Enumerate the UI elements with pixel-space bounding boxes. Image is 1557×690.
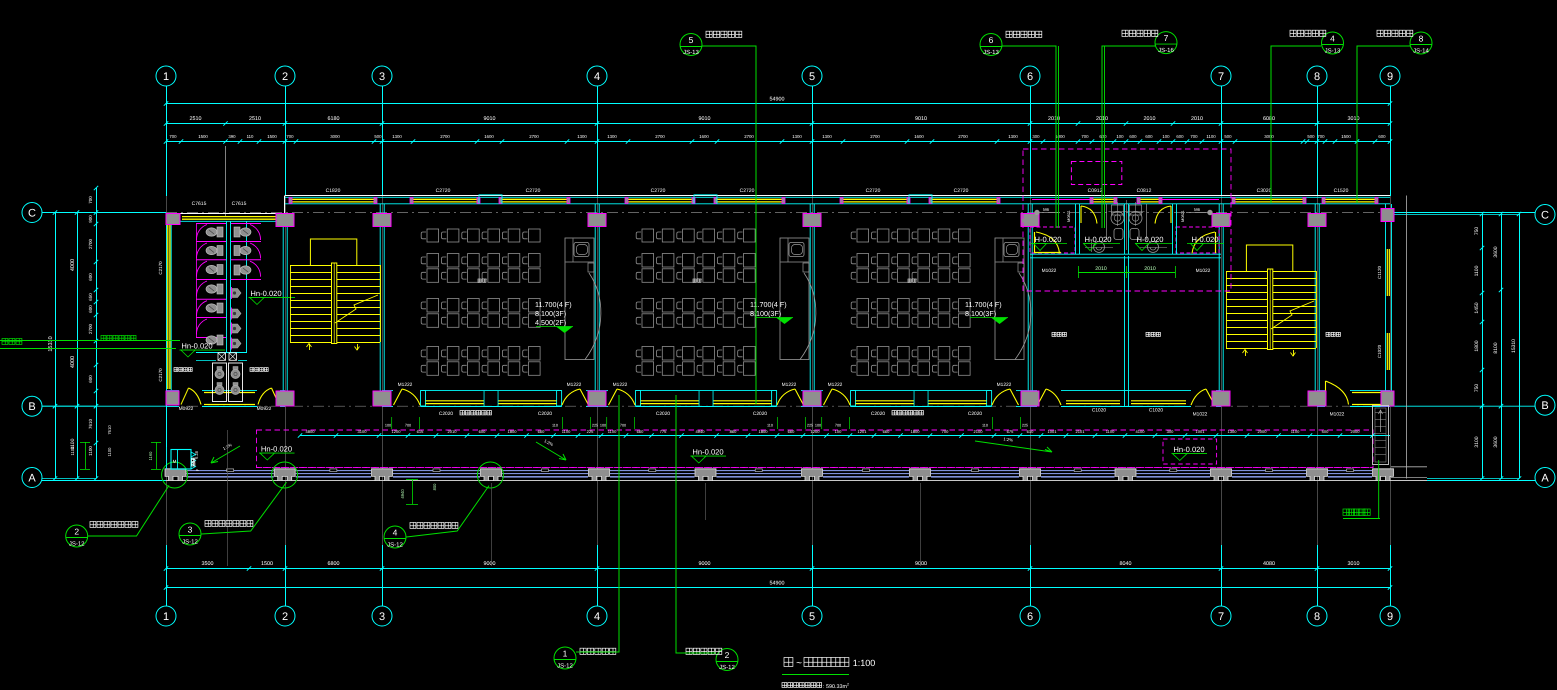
svg-text:M1022: M1022 <box>1042 268 1057 274</box>
svg-text:100: 100 <box>815 424 821 428</box>
svg-text:M1222: M1222 <box>828 382 843 388</box>
svg-text:9010: 9010 <box>484 116 496 122</box>
svg-text:C2020: C2020 <box>753 411 767 417</box>
svg-text:1100: 1100 <box>608 429 617 434</box>
svg-text:8: 8 <box>1314 611 1320 623</box>
svg-text:C7615: C7615 <box>192 201 207 207</box>
svg-text:M1222: M1222 <box>997 382 1012 388</box>
svg-text:3: 3 <box>379 611 385 623</box>
svg-text:8.100(3F): 8.100(3F) <box>750 309 781 318</box>
svg-text:1500: 1500 <box>261 561 273 567</box>
svg-text:4.500(2F): 4.500(2F) <box>535 318 566 327</box>
svg-text:3500: 3500 <box>202 561 214 567</box>
svg-text:1: 1 <box>163 611 169 623</box>
svg-text:JS-12: JS-12 <box>387 542 403 549</box>
svg-text:3600: 3600 <box>1493 436 1499 447</box>
svg-text:110: 110 <box>767 424 773 428</box>
svg-text:5: 5 <box>689 35 694 45</box>
svg-text:100: 100 <box>600 424 606 428</box>
svg-text:C1520: C1520 <box>1334 188 1349 194</box>
svg-text:2700: 2700 <box>655 134 665 139</box>
svg-text:1450: 1450 <box>1474 302 1480 313</box>
svg-text:1300: 1300 <box>607 134 617 139</box>
svg-text:3: 3 <box>188 525 193 535</box>
svg-text:1300: 1300 <box>792 134 802 139</box>
svg-text:2010: 2010 <box>1095 266 1107 272</box>
svg-text:2700: 2700 <box>744 134 754 139</box>
svg-text:C1020: C1020 <box>1149 408 1163 414</box>
svg-text:225: 225 <box>587 429 594 434</box>
svg-text:1800: 1800 <box>508 429 518 434</box>
svg-text:1500: 1500 <box>1341 134 1351 139</box>
svg-text:2700: 2700 <box>529 134 539 139</box>
svg-text:1800: 1800 <box>759 429 769 434</box>
svg-text:1800: 1800 <box>1474 340 1480 351</box>
svg-text:600: 600 <box>88 305 93 313</box>
svg-text:M1222: M1222 <box>567 382 582 388</box>
svg-text:4: 4 <box>393 528 398 538</box>
svg-text:~: ~ <box>796 658 802 669</box>
svg-text:3010: 3010 <box>1348 561 1360 567</box>
svg-text:C2720: C2720 <box>866 188 881 194</box>
svg-text:54900: 54900 <box>770 581 785 587</box>
svg-text:800: 800 <box>432 483 437 490</box>
svg-text:Hn-0.020: Hn-0.020 <box>250 289 281 298</box>
svg-text:H-0.020: H-0.020 <box>1136 235 1163 244</box>
svg-text:9010: 9010 <box>699 116 711 122</box>
svg-text:1100: 1100 <box>1474 265 1480 276</box>
svg-text:4940: 4940 <box>400 489 405 499</box>
svg-text:600: 600 <box>1145 134 1153 139</box>
svg-text:6: 6 <box>1027 611 1033 623</box>
svg-text:2000: 2000 <box>1258 429 1268 434</box>
svg-text:500: 500 <box>1322 429 1329 434</box>
svg-text:M: M <box>173 459 177 464</box>
svg-text:750: 750 <box>1474 384 1480 393</box>
svg-text:JS-12: JS-12 <box>719 664 735 671</box>
svg-text:9: 9 <box>1387 611 1393 623</box>
svg-text:2700: 2700 <box>440 134 450 139</box>
svg-text:C1120: C1120 <box>1377 266 1382 279</box>
svg-text:600: 600 <box>88 375 93 383</box>
svg-text:1: 1 <box>163 71 169 83</box>
svg-text:610: 610 <box>1027 429 1034 434</box>
svg-text:JS-12: JS-12 <box>557 663 573 670</box>
svg-text:2101: 2101 <box>1076 429 1086 434</box>
svg-text:3: 3 <box>379 71 385 83</box>
svg-text:1001: 1001 <box>1196 429 1206 434</box>
svg-text:600: 600 <box>1129 134 1137 139</box>
svg-text:Hn-0.020: Hn-0.020 <box>1173 445 1204 454</box>
svg-text:3600: 3600 <box>1493 246 1499 257</box>
svg-text:C1020: C1020 <box>1377 344 1382 358</box>
svg-text:3000: 3000 <box>330 134 340 139</box>
svg-text:110: 110 <box>552 424 558 428</box>
svg-text:7: 7 <box>1218 611 1224 623</box>
svg-text:4: 4 <box>1330 34 1335 44</box>
svg-text:8.100(3F): 8.100(3F) <box>965 309 996 318</box>
svg-text:5: 5 <box>809 71 815 83</box>
svg-text:4: 4 <box>594 611 600 623</box>
svg-text:110: 110 <box>247 134 254 139</box>
svg-text:615: 615 <box>417 429 424 434</box>
svg-text:1001: 1001 <box>1048 429 1058 434</box>
svg-text:2010: 2010 <box>1144 266 1156 272</box>
svg-text:8040: 8040 <box>1120 561 1132 567</box>
svg-text:M0922: M0922 <box>179 406 194 412</box>
svg-text:600: 600 <box>1378 134 1386 139</box>
svg-text:Hn-0.020: Hn-0.020 <box>181 342 212 351</box>
svg-text:C2720: C2720 <box>526 188 541 194</box>
svg-text:2700: 2700 <box>88 238 93 249</box>
svg-text:2: 2 <box>74 527 79 537</box>
svg-text:A: A <box>1541 473 1549 485</box>
svg-text:2700: 2700 <box>88 323 93 334</box>
svg-text:750: 750 <box>1474 227 1480 236</box>
svg-text:2: 2 <box>282 71 288 83</box>
svg-text:C2720: C2720 <box>740 188 755 194</box>
svg-text:2010: 2010 <box>1191 116 1203 122</box>
svg-text:C0812: C0812 <box>1137 188 1152 194</box>
svg-text:M1222: M1222 <box>613 382 628 388</box>
svg-text:8.100(3F): 8.100(3F) <box>535 309 566 318</box>
svg-text:JS-14: JS-14 <box>1413 48 1429 55</box>
svg-text:JS-16: JS-16 <box>1158 47 1174 54</box>
svg-text:1000: 1000 <box>1055 134 1065 139</box>
svg-text:15310: 15310 <box>48 336 54 351</box>
svg-text:11.700(4 F): 11.700(4 F) <box>750 300 787 309</box>
svg-text:1100: 1100 <box>1291 429 1300 434</box>
svg-text:C2720: C2720 <box>954 188 969 194</box>
svg-text:1300: 1300 <box>822 134 832 139</box>
svg-text:1: 1 <box>563 649 568 659</box>
svg-text:C2020: C2020 <box>538 411 552 417</box>
svg-text:300: 300 <box>1032 134 1040 139</box>
svg-text:2: 2 <box>282 611 288 623</box>
svg-text:225: 225 <box>807 424 813 428</box>
svg-text:1200: 1200 <box>811 429 821 434</box>
svg-text:6.28: 6.28 <box>194 450 199 459</box>
svg-text:11.700(4 F): 11.700(4 F) <box>965 300 1002 309</box>
svg-text:2510: 2510 <box>190 116 202 122</box>
svg-text:700: 700 <box>942 429 949 434</box>
svg-text:3000: 3000 <box>1264 134 1274 139</box>
svg-text:4080: 4080 <box>1263 561 1275 567</box>
svg-text:M1022: M1022 <box>1196 268 1211 274</box>
svg-text:9000: 9000 <box>484 561 496 567</box>
svg-text:700: 700 <box>405 424 411 428</box>
svg-text:660: 660 <box>788 429 795 434</box>
svg-text:660: 660 <box>637 429 644 434</box>
svg-text:1300: 1300 <box>392 134 402 139</box>
svg-text:9000: 9000 <box>915 561 927 567</box>
svg-text:54900: 54900 <box>770 97 785 103</box>
svg-text:675: 675 <box>1007 429 1014 434</box>
svg-text:H-0.020: H-0.020 <box>1084 235 1111 244</box>
svg-text:M0821: M0821 <box>1067 210 1071 222</box>
svg-text:: 590.33m: : 590.33m <box>823 684 847 690</box>
svg-text:1200: 1200 <box>392 429 402 434</box>
svg-text:15310: 15310 <box>1511 339 1517 353</box>
svg-text:7610: 7610 <box>107 425 112 435</box>
svg-text:C7615: C7615 <box>232 201 247 207</box>
svg-text:225: 225 <box>592 424 598 428</box>
svg-text:600: 600 <box>479 429 486 434</box>
svg-text:C: C <box>28 208 36 220</box>
svg-text:600: 600 <box>88 273 93 281</box>
svg-text:8: 8 <box>1314 71 1320 83</box>
svg-text:700: 700 <box>88 196 93 204</box>
svg-text:M0821: M0821 <box>1181 210 1185 222</box>
svg-text:C2020: C2020 <box>656 411 670 417</box>
svg-text:M6: M6 <box>1194 207 1200 212</box>
svg-text:JS-12: JS-12 <box>182 539 198 546</box>
svg-text:110: 110 <box>982 424 988 428</box>
svg-text:H-0.020: H-0.020 <box>1191 235 1218 244</box>
svg-text:1300: 1300 <box>577 134 587 139</box>
svg-text:5: 5 <box>809 611 815 623</box>
svg-text:4000: 4000 <box>70 259 76 271</box>
svg-text:4: 4 <box>594 71 600 83</box>
svg-text:100: 100 <box>835 429 842 434</box>
svg-text:9010: 9010 <box>915 116 927 122</box>
svg-text:4000: 4000 <box>70 356 76 368</box>
svg-text:500: 500 <box>1307 134 1315 139</box>
svg-text:600: 600 <box>1099 134 1107 139</box>
svg-text:2100: 2100 <box>974 429 984 434</box>
svg-text:100: 100 <box>385 424 391 428</box>
svg-text:M1222: M1222 <box>782 382 797 388</box>
svg-text:2: 2 <box>847 683 849 687</box>
svg-text:2010: 2010 <box>448 429 458 434</box>
svg-text:1100: 1100 <box>70 446 75 456</box>
svg-text:6180: 6180 <box>328 116 340 122</box>
svg-text:M6: M6 <box>1043 207 1049 212</box>
svg-text:C0912: C0912 <box>1088 188 1103 194</box>
svg-text:225: 225 <box>1022 424 1028 428</box>
svg-text:775: 775 <box>660 429 667 434</box>
svg-text:M1222: M1222 <box>398 382 413 388</box>
svg-text:1800: 1800 <box>911 429 921 434</box>
svg-text:6080: 6080 <box>1263 116 1275 122</box>
svg-text:1600: 1600 <box>914 134 924 139</box>
svg-text:2700: 2700 <box>958 134 968 139</box>
svg-text:2510: 2510 <box>249 116 261 122</box>
svg-text:C1020: C1020 <box>1092 408 1106 414</box>
svg-text:100: 100 <box>1162 134 1170 139</box>
svg-text:700: 700 <box>835 424 841 428</box>
svg-text:700: 700 <box>1081 134 1089 139</box>
svg-text:1300: 1300 <box>1228 429 1238 434</box>
svg-text:11.700(4 F): 11.700(4 F) <box>535 300 572 309</box>
svg-text:7610: 7610 <box>88 418 93 429</box>
svg-text:700: 700 <box>286 134 294 139</box>
svg-text:1300: 1300 <box>1008 134 1018 139</box>
svg-text:C2170: C2170 <box>158 261 163 275</box>
svg-text:8100: 8100 <box>1493 342 1499 353</box>
svg-text:1100: 1100 <box>1106 429 1115 434</box>
svg-text:1:100: 1:100 <box>853 658 876 668</box>
svg-text:600: 600 <box>1176 134 1184 139</box>
svg-text:3100: 3100 <box>1474 436 1480 447</box>
svg-text:1160: 1160 <box>148 451 153 460</box>
svg-text:Hn-0.020: Hn-0.020 <box>261 445 292 454</box>
svg-text:A: A <box>28 473 36 485</box>
svg-text:9: 9 <box>1387 71 1393 83</box>
svg-text:700: 700 <box>1317 134 1325 139</box>
svg-text:B: B <box>1541 400 1548 412</box>
svg-text:7: 7 <box>1218 71 1224 83</box>
svg-text:1100: 1100 <box>562 429 571 434</box>
svg-text:700: 700 <box>1190 134 1198 139</box>
svg-text:C2020: C2020 <box>439 411 453 417</box>
svg-text:2010: 2010 <box>1144 116 1156 122</box>
svg-text:C2720: C2720 <box>651 188 666 194</box>
svg-text:C3020: C3020 <box>1257 188 1272 194</box>
svg-text:Hn-0.020: Hn-0.020 <box>692 448 723 457</box>
svg-text:M1022: M1022 <box>1193 412 1208 418</box>
svg-text:500: 500 <box>374 134 382 139</box>
svg-text:860: 860 <box>730 429 737 434</box>
svg-text:M0922: M0922 <box>257 406 272 412</box>
svg-text:6800: 6800 <box>328 561 340 567</box>
svg-text:JS-13: JS-13 <box>1325 48 1341 55</box>
svg-text:C: C <box>1541 210 1549 222</box>
svg-text:1100: 1100 <box>1206 134 1216 139</box>
svg-text:8: 8 <box>1419 34 1424 44</box>
svg-text:500: 500 <box>1224 134 1232 139</box>
svg-text:C2720: C2720 <box>436 188 451 194</box>
svg-text:1201: 1201 <box>858 429 868 434</box>
svg-text:1600: 1600 <box>699 134 709 139</box>
svg-text:390: 390 <box>228 134 236 139</box>
svg-text:2000: 2000 <box>1351 429 1361 434</box>
svg-text:C2020: C2020 <box>968 411 982 417</box>
svg-text:2700: 2700 <box>870 134 880 139</box>
svg-text:6: 6 <box>1027 71 1033 83</box>
svg-text:1500: 1500 <box>267 134 277 139</box>
svg-text:3100: 3100 <box>358 429 368 434</box>
svg-text:2: 2 <box>725 650 730 660</box>
svg-text:300: 300 <box>1167 429 1174 434</box>
svg-text:C1820: C1820 <box>326 188 341 194</box>
svg-text:C2020: C2020 <box>871 411 885 417</box>
svg-text:3010: 3010 <box>1348 116 1360 122</box>
svg-text:650: 650 <box>88 293 93 301</box>
svg-text:JS-13: JS-13 <box>683 49 699 56</box>
svg-text:100: 100 <box>1116 134 1124 139</box>
svg-text:700: 700 <box>620 424 626 428</box>
svg-text:4800: 4800 <box>306 429 316 434</box>
svg-text:7: 7 <box>1164 33 1169 43</box>
svg-text:6: 6 <box>989 35 994 45</box>
svg-text:1100: 1100 <box>88 446 93 456</box>
svg-text:1100: 1100 <box>107 447 112 457</box>
svg-text:4940: 4940 <box>696 429 706 434</box>
svg-text:H-0.020: H-0.020 <box>1034 235 1061 244</box>
svg-text:700: 700 <box>169 134 177 139</box>
svg-text:JS-13: JS-13 <box>983 49 999 56</box>
svg-text:M1022: M1022 <box>1330 412 1345 418</box>
svg-text:660: 660 <box>883 429 890 434</box>
svg-text:1600: 1600 <box>484 134 494 139</box>
svg-text:900: 900 <box>88 215 93 223</box>
svg-text:660: 660 <box>538 429 545 434</box>
svg-text:JS-12: JS-12 <box>69 541 85 548</box>
svg-text:C2170: C2170 <box>158 368 163 382</box>
svg-text:4100: 4100 <box>1136 429 1146 434</box>
svg-text:B: B <box>28 401 35 413</box>
svg-text:1500: 1500 <box>198 134 208 139</box>
svg-text:9000: 9000 <box>699 561 711 567</box>
